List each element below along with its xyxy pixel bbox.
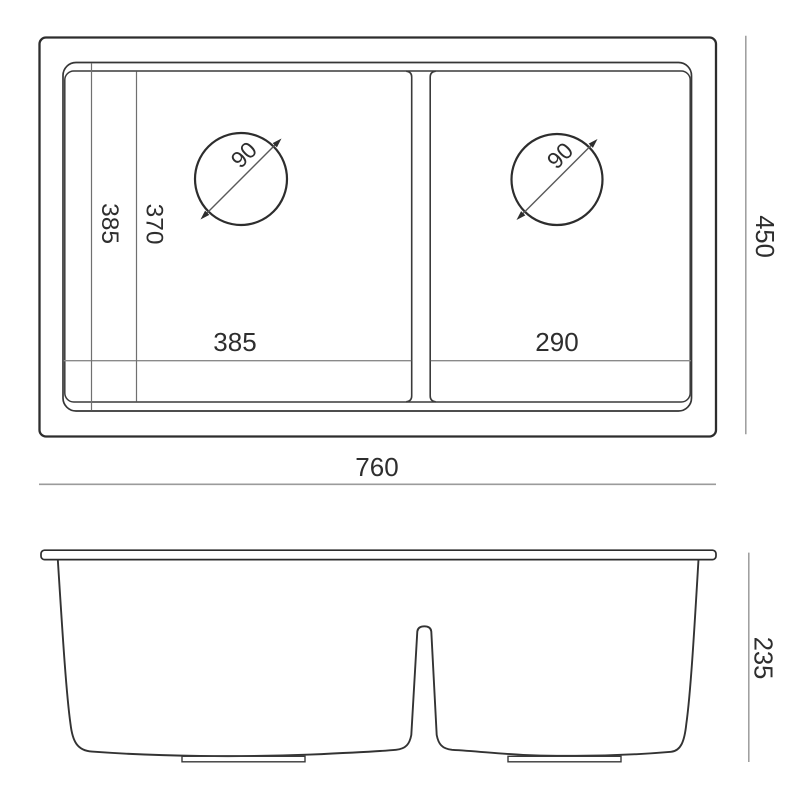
svg-text:385: 385 bbox=[96, 203, 123, 244]
svg-text:385: 385 bbox=[213, 327, 256, 357]
svg-text:760: 760 bbox=[355, 452, 398, 482]
svg-text:370: 370 bbox=[141, 204, 168, 245]
svg-text:290: 290 bbox=[535, 327, 578, 357]
svg-text:450: 450 bbox=[750, 215, 778, 258]
svg-text:235: 235 bbox=[749, 637, 777, 680]
